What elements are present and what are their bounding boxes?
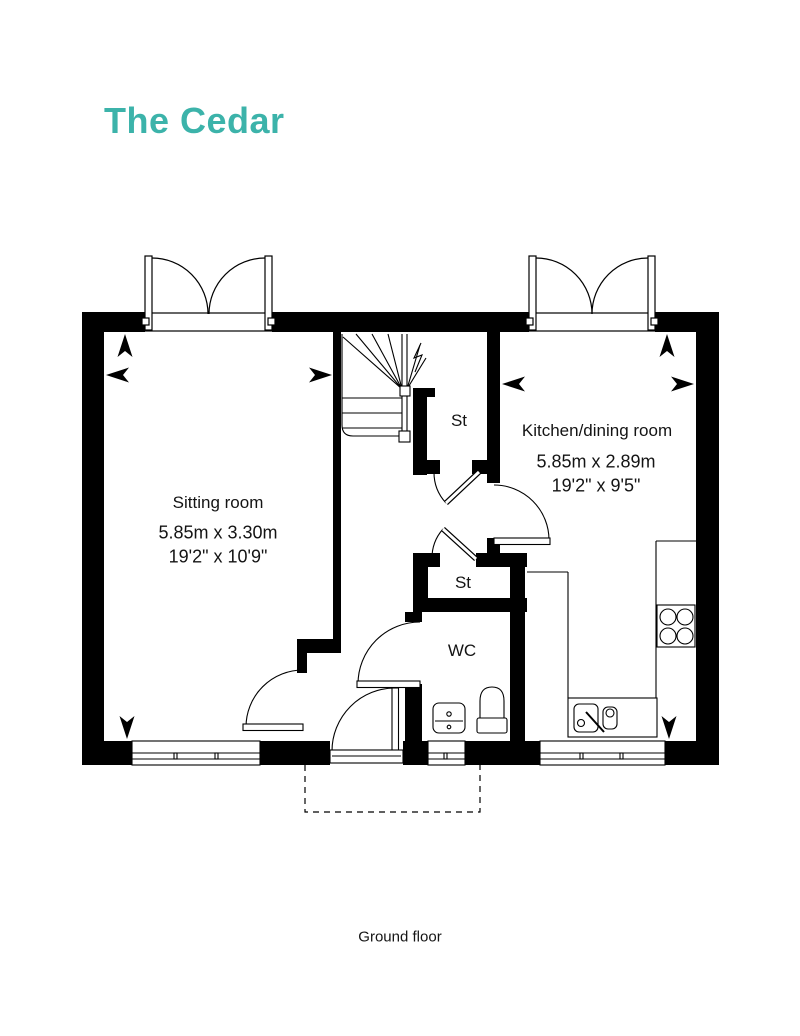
- arrow-up-icon: [118, 334, 133, 357]
- sitting-room-label: Sitting room: [173, 493, 264, 513]
- arrow-up-icon: [660, 334, 675, 357]
- wall-wc-left-top: [405, 612, 422, 622]
- wall-bottom-4: [465, 741, 540, 765]
- floorplan-drawing: [0, 0, 800, 1036]
- door-leaf-inner: [443, 529, 476, 559]
- kitchen-fixtures: [527, 541, 696, 737]
- hob-burner: [660, 609, 676, 625]
- door-swing-arc: [434, 472, 446, 503]
- toilet-cistern: [477, 718, 507, 733]
- door-leaf: [392, 688, 399, 751]
- door-swing-arc: [246, 670, 303, 727]
- arrow-down-icon: [120, 716, 135, 739]
- kitchen-dining-size-imperial: 19'2" x 9'5": [552, 476, 641, 497]
- stair-break-line: [414, 343, 422, 372]
- wall-bottom-5: [665, 741, 719, 765]
- arrow-right-icon: [309, 368, 332, 383]
- wall-right: [696, 312, 719, 765]
- french-doors-sitting: [142, 256, 275, 331]
- wall-left: [82, 312, 104, 765]
- wall-bottom-1: [82, 741, 132, 765]
- wall-jog: [297, 639, 341, 653]
- hinge-icon: [142, 318, 149, 325]
- sink-drain: [606, 709, 614, 717]
- wall-store1-bottom-l: [413, 460, 440, 474]
- window-sitting: [132, 741, 260, 765]
- washbasin-drain: [447, 725, 451, 729]
- wall-hall-sitting: [333, 332, 341, 653]
- threshold: [529, 313, 655, 331]
- hob-burner: [660, 628, 676, 644]
- door-swing-arc: [332, 688, 395, 751]
- worktop-outline: [527, 541, 696, 698]
- sink-bowl-left: [574, 704, 598, 732]
- stair-treads: [342, 398, 402, 428]
- wall-bottom-3: [403, 741, 428, 765]
- sitting-room-size-imperial: 19'2" x 10'9": [169, 547, 268, 568]
- door-swing-arc: [209, 258, 265, 314]
- french-doors-kitchen: [526, 256, 658, 331]
- door-swing-arc: [494, 485, 549, 540]
- store1-door: [434, 472, 479, 503]
- toilet-bowl-icon: [480, 687, 504, 718]
- wc-fixtures: [433, 687, 507, 733]
- wall-top-3: [655, 312, 719, 332]
- mullion: [444, 753, 447, 759]
- floor-caption: Ground floor: [358, 929, 441, 946]
- mullion: [580, 753, 583, 759]
- newel-post: [400, 386, 410, 396]
- stair-handrail: [402, 334, 407, 431]
- arrow-down-icon: [662, 716, 677, 739]
- newel-post: [399, 431, 410, 442]
- hob-burner: [677, 628, 693, 644]
- mullion: [174, 753, 177, 759]
- wall-wc-left-bottom: [405, 684, 422, 741]
- door-leaf-inner: [446, 472, 479, 503]
- sink-bowl-right: [603, 707, 617, 729]
- door-swing-arc: [358, 622, 420, 684]
- window-wc: [428, 741, 465, 765]
- arrow-left-icon: [106, 368, 129, 383]
- kitchen-dining-label: Kitchen/dining room: [522, 421, 672, 441]
- mullion: [215, 753, 218, 759]
- washbasin-tap: [447, 712, 451, 716]
- wall-wc-right: [510, 553, 525, 741]
- hinge-icon: [526, 318, 533, 325]
- arrow-right-icon: [671, 377, 694, 392]
- mullion: [620, 753, 623, 759]
- storage-bottom-label: St: [455, 573, 471, 593]
- door-leaf: [357, 681, 420, 688]
- sink-drain: [578, 720, 585, 727]
- sink-tap-icon: [586, 712, 604, 732]
- stair-winders-left: [343, 334, 402, 389]
- floorplan-page: The Cedar: [0, 0, 800, 1036]
- hinge-icon: [268, 318, 275, 325]
- stair-outline: [342, 334, 406, 436]
- door-leaf: [243, 724, 303, 731]
- front-door: [330, 688, 403, 763]
- wall-top-1: [82, 312, 145, 332]
- sitting-room-size-metric: 5.85m x 3.30m: [158, 523, 277, 544]
- kitchen-door: [494, 485, 550, 545]
- window-kitchen: [540, 741, 665, 765]
- wall-store1-notch: [413, 388, 435, 397]
- door-swing-arc: [536, 258, 592, 314]
- wc-door: [357, 622, 420, 688]
- door-swing-arc: [592, 258, 648, 314]
- wc-label: WC: [448, 641, 476, 661]
- wall-store2-bottom: [413, 598, 527, 612]
- hinge-icon: [651, 318, 658, 325]
- wall-top-2: [272, 312, 529, 332]
- threshold: [145, 313, 272, 331]
- interior-doors: [243, 472, 550, 763]
- arrow-left-icon: [502, 377, 525, 392]
- kitchen-dining-size-metric: 5.85m x 2.89m: [536, 452, 655, 473]
- door-leaf: [494, 538, 550, 545]
- porch-outline: [305, 765, 480, 812]
- door-swing-arc: [152, 258, 208, 314]
- wall-bottom-2: [260, 741, 330, 765]
- storage-top-label: St: [451, 411, 467, 431]
- sitting-room-door: [243, 670, 303, 731]
- hob-burner: [677, 609, 693, 625]
